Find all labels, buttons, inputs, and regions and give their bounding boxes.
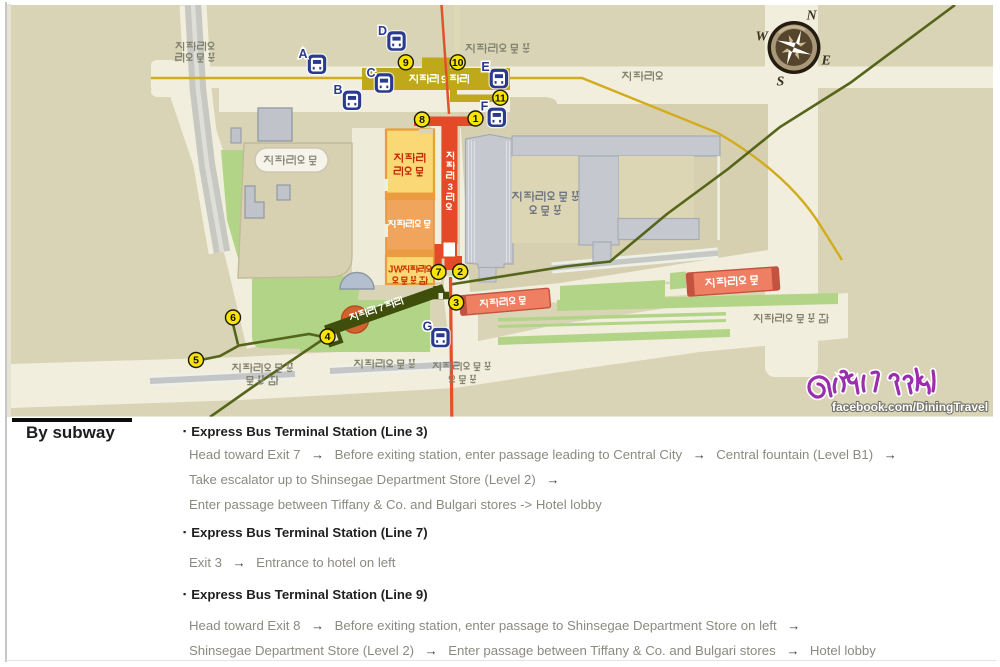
- svg-text:7: 7: [436, 267, 442, 279]
- svg-text:JW: JW: [388, 265, 403, 276]
- svg-text:D: D: [378, 24, 387, 38]
- svg-text:A: A: [298, 47, 307, 61]
- svg-text:1: 1: [473, 113, 479, 125]
- svg-text:5: 5: [193, 355, 199, 367]
- svg-text:11: 11: [495, 92, 506, 104]
- svg-text:6: 6: [230, 312, 236, 324]
- svg-text:N: N: [806, 9, 818, 24]
- svg-text:8: 8: [419, 114, 425, 126]
- svg-text:facebook.com/DiningTravel: facebook.com/DiningTravel: [832, 400, 988, 414]
- svg-text:10: 10: [452, 57, 464, 69]
- svg-text:E: E: [481, 60, 489, 74]
- svg-text:9: 9: [403, 57, 409, 69]
- svg-text:W: W: [756, 30, 770, 45]
- svg-text:C: C: [366, 66, 375, 80]
- svg-text:F: F: [481, 100, 489, 114]
- svg-text:3: 3: [453, 297, 459, 309]
- svg-text:2: 2: [457, 266, 463, 278]
- svg-text:G: G: [423, 320, 433, 334]
- svg-text:B: B: [333, 83, 342, 97]
- svg-text:S: S: [777, 75, 785, 90]
- svg-text:3: 3: [448, 182, 453, 193]
- svg-text:4: 4: [325, 331, 331, 343]
- svg-text:E: E: [821, 54, 831, 69]
